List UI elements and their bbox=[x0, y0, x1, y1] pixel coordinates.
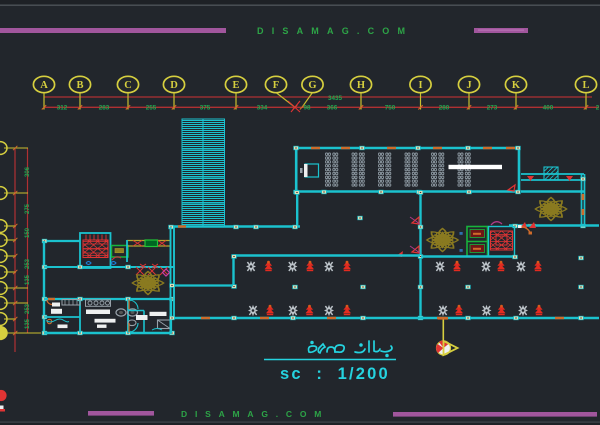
svg-text:3435: 3435 bbox=[328, 95, 343, 102]
svg-text:253: 253 bbox=[25, 303, 31, 314]
svg-text:sc : 1/200: sc : 1/200 bbox=[280, 365, 390, 383]
svg-text:K: K bbox=[512, 80, 521, 91]
svg-text:A: A bbox=[40, 80, 48, 91]
svg-text:E: E bbox=[232, 80, 239, 91]
svg-text:375: 375 bbox=[200, 105, 211, 112]
svg-text:I: I bbox=[418, 80, 422, 91]
svg-text:DISAMAG.COM: DISAMAG.COM bbox=[181, 409, 329, 419]
svg-text:312: 312 bbox=[57, 105, 68, 112]
svg-text:C: C bbox=[124, 80, 132, 91]
svg-text:135: 135 bbox=[25, 318, 31, 329]
svg-text:275: 275 bbox=[25, 203, 31, 214]
svg-text:150: 150 bbox=[25, 227, 31, 238]
svg-text:135: 135 bbox=[25, 274, 31, 285]
svg-text:255: 255 bbox=[146, 105, 157, 112]
svg-text:D: D bbox=[170, 80, 178, 91]
svg-text:750: 750 bbox=[385, 105, 396, 112]
svg-text:400: 400 bbox=[543, 105, 554, 112]
svg-text:DISAMAG.COM: DISAMAG.COM bbox=[257, 26, 413, 36]
svg-text:G: G bbox=[308, 80, 316, 91]
svg-text:2: 2 bbox=[596, 105, 600, 112]
svg-text:253: 253 bbox=[25, 258, 31, 269]
svg-text:334: 334 bbox=[257, 105, 268, 112]
svg-text:280: 280 bbox=[439, 105, 450, 112]
svg-text:283: 283 bbox=[99, 105, 110, 112]
svg-text:98: 98 bbox=[303, 105, 311, 112]
svg-text:B: B bbox=[76, 80, 83, 91]
svg-text:306: 306 bbox=[25, 166, 31, 177]
svg-text:F: F bbox=[273, 80, 279, 91]
svg-text:L: L bbox=[582, 80, 589, 91]
svg-text:J: J bbox=[466, 80, 471, 91]
svg-text:H: H bbox=[357, 80, 365, 91]
svg-text:273: 273 bbox=[487, 105, 498, 112]
svg-text:366: 366 bbox=[327, 105, 338, 112]
